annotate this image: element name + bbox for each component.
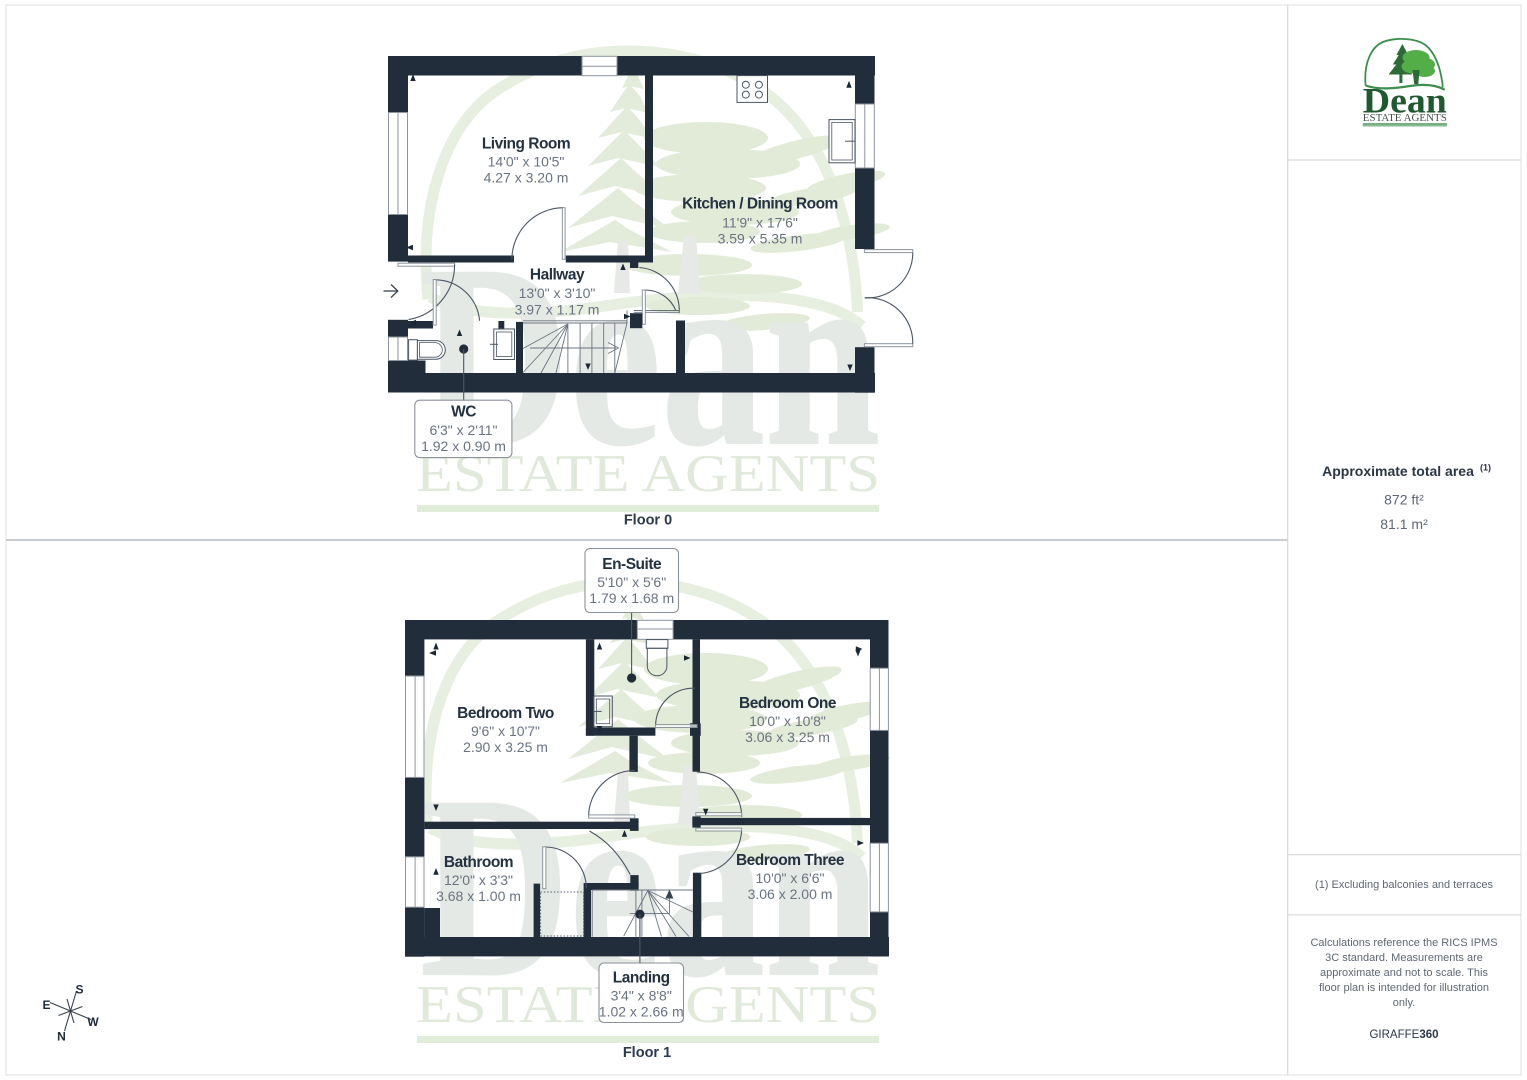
svg-text:Floor 0: Floor 0	[624, 513, 672, 529]
svg-text:3.06 x 3.25 m: 3.06 x 3.25 m	[745, 729, 830, 745]
svg-text:11'9" x 17'6": 11'9" x 17'6"	[722, 215, 798, 231]
svg-text:E: E	[42, 998, 50, 1012]
svg-text:Calculations reference the RIC: Calculations reference the RICS IPMS	[1310, 937, 1497, 949]
svg-text:approximate and not to scale.: approximate and not to scale. This	[1320, 967, 1488, 979]
svg-text:10'0" x 10'8": 10'0" x 10'8"	[749, 713, 826, 729]
svg-text:Bedroom One: Bedroom One	[739, 695, 837, 712]
svg-text:3'4" x 8'8": 3'4" x 8'8"	[611, 988, 672, 1004]
svg-text:3.68 x 1.00 m: 3.68 x 1.00 m	[436, 888, 521, 904]
svg-text:GIRAFFE360: GIRAFFE360	[1369, 1029, 1438, 1041]
svg-text:6'3" x 2'11": 6'3" x 2'11"	[430, 422, 498, 438]
svg-text:10'0" x 6'6": 10'0" x 6'6"	[756, 870, 825, 886]
svg-text:N: N	[57, 1030, 66, 1044]
svg-text:En-Suite: En-Suite	[602, 556, 662, 573]
svg-text:floor plan is intended for ill: floor plan is intended for illustration	[1319, 982, 1489, 994]
svg-text:only.: only.	[1393, 997, 1415, 1009]
svg-text:(1) Excluding balconies and te: (1) Excluding balconies and terraces	[1315, 879, 1493, 891]
svg-text:Landing: Landing	[613, 970, 670, 987]
svg-text:2.90 x 3.25 m: 2.90 x 3.25 m	[463, 739, 548, 755]
svg-text:W: W	[87, 1015, 99, 1029]
svg-text:3.06 x 2.00 m: 3.06 x 2.00 m	[748, 886, 833, 902]
svg-text:Floor 1: Floor 1	[623, 1045, 671, 1061]
svg-text:1.02 x 2.66 m: 1.02 x 2.66 m	[599, 1004, 684, 1020]
svg-text:Hallway: Hallway	[530, 267, 585, 284]
svg-text:3C standard. Measurements are: 3C standard. Measurements are	[1325, 952, 1483, 964]
svg-text:1.79 x 1.68 m: 1.79 x 1.68 m	[589, 590, 674, 606]
svg-text:S: S	[75, 983, 83, 997]
svg-text:WC: WC	[451, 404, 476, 421]
svg-text:872 ft²: 872 ft²	[1384, 492, 1424, 508]
svg-text:13'0" x 3'10": 13'0" x 3'10"	[519, 285, 596, 301]
svg-text:Kitchen / Dining Room: Kitchen / Dining Room	[682, 196, 838, 213]
svg-text:(1): (1)	[1480, 463, 1491, 473]
svg-text:9'6" x 10'7": 9'6" x 10'7"	[471, 723, 540, 739]
svg-text:14'0" x 10'5": 14'0" x 10'5"	[488, 154, 565, 170]
svg-text:Bathroom: Bathroom	[444, 854, 513, 871]
svg-text:5'10" x 5'6": 5'10" x 5'6"	[597, 574, 666, 590]
svg-text:3.97 x 1.17 m: 3.97 x 1.17 m	[515, 302, 600, 318]
svg-text:Living Room: Living Room	[482, 136, 570, 153]
svg-text:12'0" x 3'3": 12'0" x 3'3"	[444, 872, 513, 888]
svg-text:Bedroom Three: Bedroom Three	[736, 852, 845, 869]
svg-text:ESTATE AGENTS: ESTATE AGENTS	[1363, 113, 1447, 124]
svg-text:Approximate total area: Approximate total area	[1322, 463, 1474, 479]
svg-text:81.1 m²: 81.1 m²	[1380, 516, 1428, 532]
svg-text:4.27 x 3.20 m: 4.27 x 3.20 m	[484, 170, 569, 186]
svg-text:Bedroom Two: Bedroom Two	[457, 705, 554, 722]
svg-text:3.59 x 5.35 m: 3.59 x 5.35 m	[718, 231, 803, 247]
svg-text:1.92 x 0.90 m: 1.92 x 0.90 m	[421, 438, 506, 454]
